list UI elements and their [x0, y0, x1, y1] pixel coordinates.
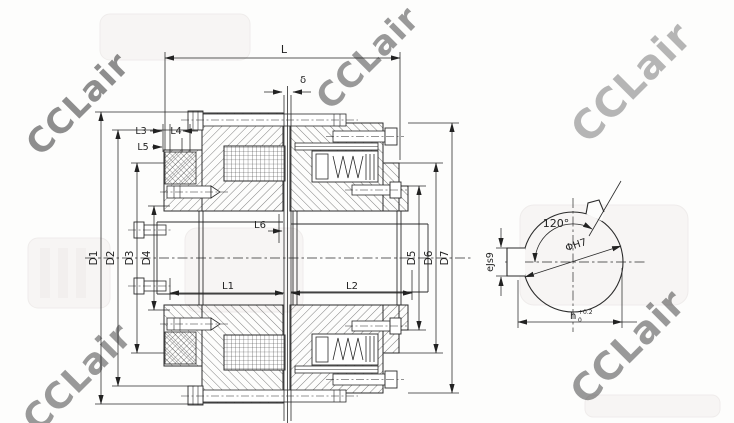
dim-label-D4: D4: [141, 250, 153, 265]
dim-label-L6: L6: [254, 220, 266, 231]
dim-label-L2: L2: [346, 281, 358, 292]
dim-label-D6: D6: [423, 250, 435, 265]
dim-label-L4: L4: [170, 126, 181, 137]
watermark-text: CCLair: [562, 13, 701, 152]
watermark-text: CCLair: [18, 44, 137, 163]
dim-label-delta: δ: [300, 75, 306, 86]
dim-label-D2: D2: [105, 251, 117, 266]
drawing-page: CCLair CCLair CCLair CCLair CCLair: [0, 0, 734, 423]
dim-label-D7: D7: [439, 251, 451, 266]
dim-label-L3: L3: [135, 126, 146, 137]
shaft-end-stud: [128, 222, 172, 238]
dim-label-key-depth: h: [570, 311, 576, 322]
watermark-text: CCLair: [308, 0, 427, 118]
dim-label-tol-upper: +0.2: [578, 309, 593, 316]
dim-label-key-width: eJs9: [485, 252, 496, 272]
dim-label-L: L: [281, 43, 288, 56]
dim-label-D1: D1: [88, 251, 100, 266]
dim-label-L1: L1: [222, 281, 234, 292]
dim-label-D5: D5: [406, 251, 418, 266]
dim-label-L5: L5: [137, 142, 148, 153]
dim-label-tol-lower: 0: [578, 317, 582, 324]
dim-label-D3: D3: [124, 251, 136, 266]
watermark-text: CCLair: [15, 315, 140, 423]
dim-label-angle: 120°: [543, 217, 570, 230]
technical-drawing-coupling: CCLair CCLair CCLair CCLair CCLair: [0, 0, 734, 423]
coupling-upper-half: [95, 111, 459, 238]
